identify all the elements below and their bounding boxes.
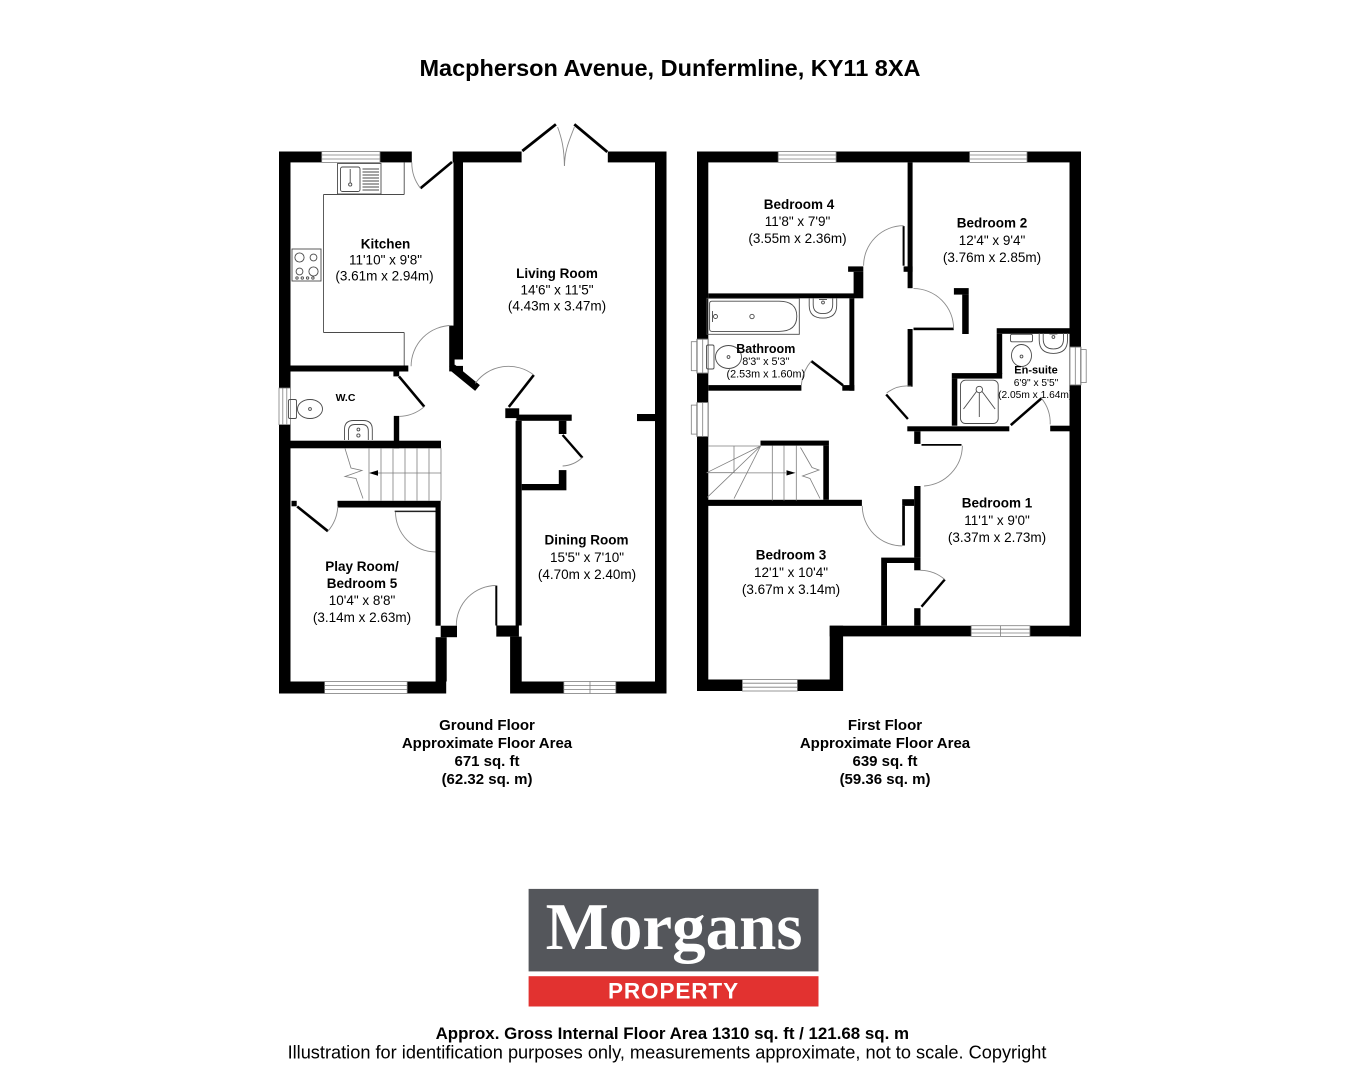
svg-text:Macpherson Avenue, Dunfermline: Macpherson Avenue, Dunfermline, KY11 8XA: [419, 55, 920, 81]
svg-text:(62.32 sq. m): (62.32 sq. m): [442, 771, 533, 788]
svg-text:Bedroom 2: Bedroom 2: [957, 216, 1028, 231]
svg-text:15'5" x 7'10": 15'5" x 7'10": [550, 550, 624, 565]
svg-text:671 sq. ft: 671 sq. ft: [454, 753, 519, 770]
svg-text:(3.61m x 2.94m): (3.61m x 2.94m): [335, 268, 433, 283]
svg-text:Living Room: Living Room: [516, 266, 598, 281]
svg-text:(2.05m x 1.64m): (2.05m x 1.64m): [998, 390, 1072, 401]
svg-text:11'1" x 9'0": 11'1" x 9'0": [964, 513, 1030, 528]
svg-text:Bedroom 4: Bedroom 4: [764, 197, 835, 212]
svg-text:639 sq. ft: 639 sq. ft: [852, 753, 917, 770]
svg-text:11'8" x 7'9": 11'8" x 7'9": [765, 214, 831, 229]
svg-text:14'6" x 11'5": 14'6" x 11'5": [520, 282, 593, 297]
svg-text:(4.43m x 3.47m): (4.43m x 3.47m): [508, 299, 606, 314]
svg-text:Morgans: Morgans: [546, 890, 803, 964]
svg-text:12'4" x 9'4": 12'4" x 9'4": [959, 233, 1026, 248]
svg-text:PROPERTY: PROPERTY: [608, 979, 739, 1004]
svg-text:11'10" x 9'8": 11'10" x 9'8": [349, 253, 422, 268]
svg-text:Bedroom 3: Bedroom 3: [756, 548, 827, 563]
svg-text:First Floor: First Floor: [848, 717, 922, 734]
svg-text:(3.67m x 3.14m): (3.67m x 3.14m): [742, 582, 840, 597]
svg-text:Bathroom: Bathroom: [736, 342, 795, 356]
svg-text:Bedroom 5: Bedroom 5: [327, 576, 398, 591]
svg-text:10'4" x 8'8": 10'4" x 8'8": [329, 593, 396, 608]
svg-text:Bedroom 1: Bedroom 1: [962, 496, 1033, 511]
svg-text:(3.55m x 2.36m): (3.55m x 2.36m): [748, 231, 846, 246]
svg-text:12'1" x 10'4": 12'1" x 10'4": [754, 565, 828, 580]
svg-text:Ground Floor: Ground Floor: [439, 717, 535, 734]
svg-text:(3.14m x 2.63m): (3.14m x 2.63m): [313, 610, 411, 625]
svg-text:Approximate Floor Area: Approximate Floor Area: [402, 735, 573, 752]
svg-text:6'9" x 5'5": 6'9" x 5'5": [1014, 378, 1059, 389]
svg-text:8'3" x 5'3": 8'3" x 5'3": [742, 356, 789, 368]
svg-text:Play Room/: Play Room/: [325, 559, 399, 574]
svg-text:Approximate Floor Area: Approximate Floor Area: [800, 735, 971, 752]
svg-text:(59.36 sq. m): (59.36 sq. m): [840, 771, 931, 788]
svg-text:W.C: W.C: [336, 392, 356, 404]
svg-text:Illustration for identificatio: Illustration for identification purposes…: [288, 1043, 1047, 1063]
svg-text:(4.70m x 2.40m): (4.70m x 2.40m): [538, 567, 636, 582]
svg-text:Dining Room: Dining Room: [545, 533, 629, 548]
svg-text:(3.37m x 2.73m): (3.37m x 2.73m): [948, 530, 1046, 545]
svg-text:(3.76m x 2.85m): (3.76m x 2.85m): [943, 250, 1041, 265]
svg-text:En-suite: En-suite: [1014, 365, 1057, 377]
svg-text:Approx. Gross Internal Floor A: Approx. Gross Internal Floor Area 1310 s…: [436, 1024, 909, 1043]
svg-text:(2.53m x 1.60m): (2.53m x 1.60m): [726, 368, 805, 380]
svg-text:Kitchen: Kitchen: [361, 236, 411, 251]
